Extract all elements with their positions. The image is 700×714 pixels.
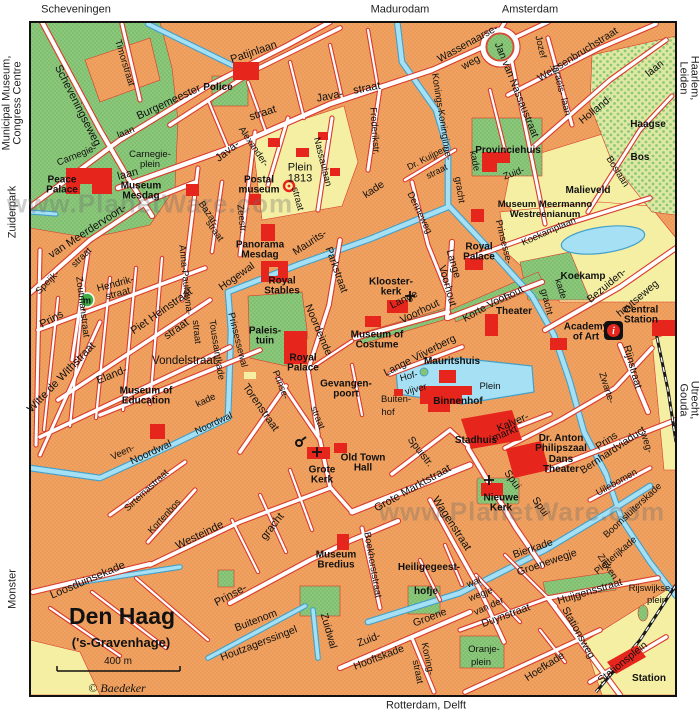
building-panorama-mesdag <box>261 224 275 241</box>
building-block <box>268 138 280 147</box>
park-roundabout <box>487 34 513 60</box>
building-grote-kerk <box>307 447 330 459</box>
building-gevangenpoort <box>394 389 403 396</box>
building-museum-of-costume <box>365 316 381 327</box>
field-small <box>244 372 256 379</box>
building-meermanno <box>471 209 484 222</box>
building-museum-bredius <box>337 534 349 550</box>
building-nieuwe-kerk <box>481 483 503 496</box>
building-kloosterkerk <box>387 300 408 313</box>
park-oranjeplein <box>460 636 504 668</box>
building-museum-of-education <box>150 424 165 439</box>
building-police <box>233 62 259 80</box>
building-postal-museum <box>249 194 261 205</box>
building-block <box>296 148 309 157</box>
map-canvas: i m <box>0 0 700 714</box>
building-block <box>318 132 328 140</box>
building-royal-palace-voorhout <box>465 258 483 270</box>
monument-ring-icon <box>284 181 294 191</box>
building-block <box>330 168 340 176</box>
city-map-page: i m ScheveningenMadurodamAmsterdamHaarle… <box>0 0 700 714</box>
building-royal-palace-noordeinde <box>284 331 307 364</box>
building-mauritshuis <box>439 370 456 383</box>
building-old-town-hall <box>334 443 347 453</box>
tram-stop-letter: m <box>83 296 91 306</box>
building-theater <box>485 314 498 336</box>
info-icon: i <box>604 321 623 340</box>
park-block-1 <box>300 586 340 616</box>
park-rijswijkseplein <box>638 605 648 621</box>
tram-stop-icon: m <box>80 293 94 307</box>
park-block-3 <box>218 570 234 587</box>
canal-stub <box>30 212 56 214</box>
building-central-station <box>652 320 675 336</box>
building-museum-mesdag <box>186 184 199 196</box>
info-icon-letter: i <box>612 326 615 337</box>
building-academy-of-art <box>550 338 567 350</box>
hofvijver-island <box>420 368 428 376</box>
